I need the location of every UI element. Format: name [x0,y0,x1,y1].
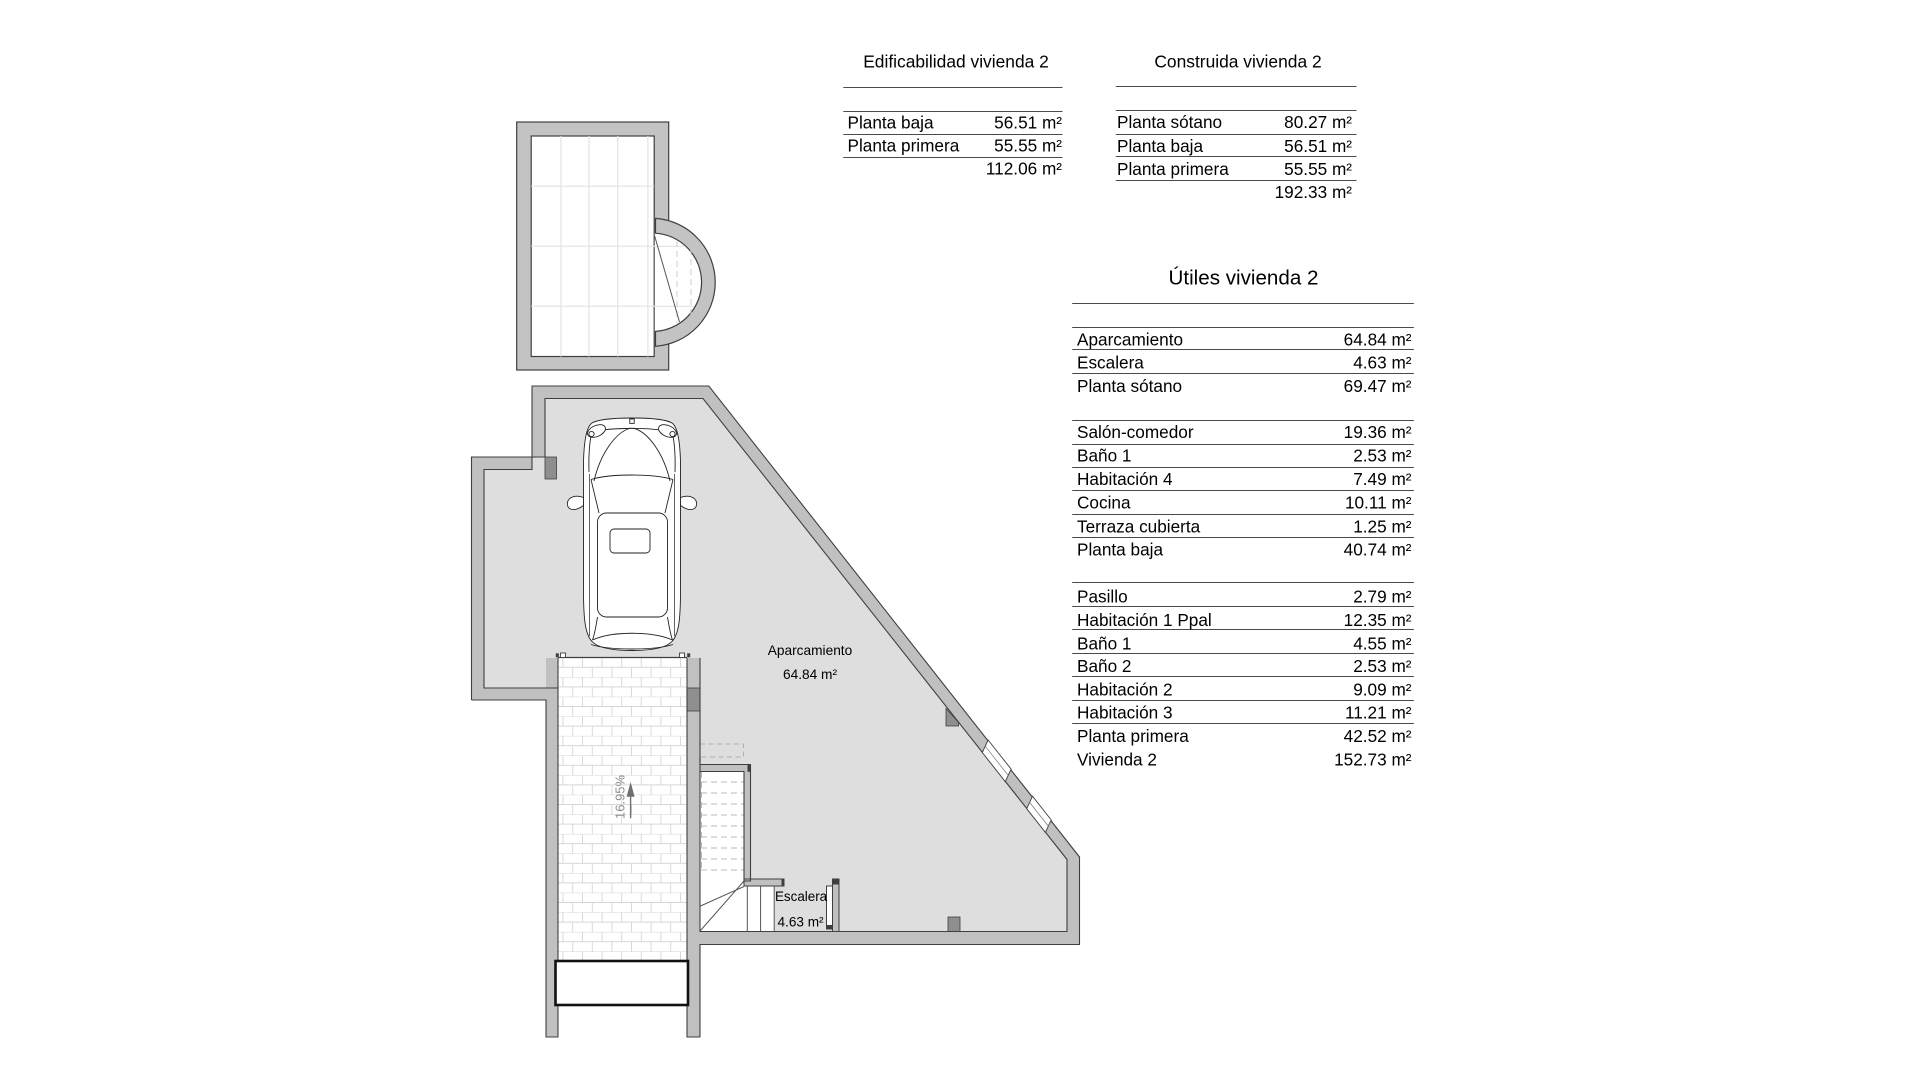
svg-text:Habitación 4: Habitación 4 [1077,469,1173,489]
svg-text:4.63 m²: 4.63 m² [778,915,825,930]
svg-text:Planta primera: Planta primera [1117,159,1229,179]
svg-text:80.27 m²: 80.27 m² [1284,112,1352,132]
svg-text:Aparcamiento: Aparcamiento [1077,330,1183,350]
svg-text:55.55 m²: 55.55 m² [1284,159,1352,179]
svg-text:7.49 m²: 7.49 m² [1353,469,1412,489]
svg-text:56.51 m²: 56.51 m² [994,113,1062,133]
svg-text:12.35 m²: 12.35 m² [1344,610,1412,630]
svg-text:Edificabilidad vivienda 2: Edificabilidad vivienda 2 [863,52,1049,72]
svg-text:152.73 m²: 152.73 m² [1334,749,1412,769]
svg-text:Útiles vivienda 2: Útiles vivienda 2 [1169,267,1319,290]
svg-text:16.95%: 16.95% [613,774,628,819]
svg-text:56.51 m²: 56.51 m² [1284,136,1352,156]
svg-text:Terraza cubierta: Terraza cubierta [1077,516,1201,536]
svg-text:Planta sótano: Planta sótano [1077,376,1182,396]
svg-text:Vivienda 2: Vivienda 2 [1077,749,1157,769]
svg-text:10.11 m²: 10.11 m² [1345,492,1412,512]
svg-text:Planta primera: Planta primera [1077,726,1189,746]
svg-text:2.79 m²: 2.79 m² [1353,586,1412,606]
svg-text:Baño 2: Baño 2 [1077,656,1131,676]
svg-text:Planta baja: Planta baja [848,113,934,133]
svg-text:42.52 m²: 42.52 m² [1344,726,1412,746]
svg-text:Salón-comedor: Salón-comedor [1077,422,1194,442]
svg-text:Pasillo: Pasillo [1077,586,1128,606]
svg-text:Escalera: Escalera [1077,353,1144,373]
svg-text:4.63 m²: 4.63 m² [1353,353,1412,373]
svg-text:Habitación 3: Habitación 3 [1077,702,1173,722]
svg-text:9.09 m²: 9.09 m² [1353,680,1412,700]
svg-text:11.21 m²: 11.21 m² [1345,702,1412,722]
svg-text:Habitación 1 Ppal: Habitación 1 Ppal [1077,610,1212,630]
svg-text:Baño 1: Baño 1 [1077,446,1131,466]
svg-text:19.36 m²: 19.36 m² [1344,422,1412,442]
svg-text:Construida vivienda 2: Construida vivienda 2 [1154,52,1321,72]
svg-text:Baño 1: Baño 1 [1077,633,1131,653]
svg-text:Habitación 2: Habitación 2 [1077,680,1173,700]
svg-text:Planta sótano: Planta sótano [1117,112,1222,132]
svg-text:192.33 m²: 192.33 m² [1275,182,1353,202]
svg-text:2.53 m²: 2.53 m² [1353,446,1412,466]
svg-text:69.47 m²: 69.47 m² [1344,376,1412,396]
svg-text:4.55 m²: 4.55 m² [1353,633,1412,653]
svg-text:Planta primera: Planta primera [848,135,960,155]
svg-text:40.74 m²: 40.74 m² [1344,539,1412,559]
svg-text:Escalera: Escalera [775,889,828,904]
svg-text:64.84 m²: 64.84 m² [783,667,837,682]
svg-text:55.55 m²: 55.55 m² [994,135,1062,155]
svg-text:112.06 m²: 112.06 m² [986,158,1062,178]
svg-text:Planta baja: Planta baja [1117,136,1203,156]
svg-text:2.53 m²: 2.53 m² [1353,656,1412,676]
svg-text:Aparcamiento: Aparcamiento [768,643,853,658]
svg-text:Cocina: Cocina [1077,492,1131,512]
svg-text:Planta baja: Planta baja [1077,539,1163,559]
svg-text:1.25 m²: 1.25 m² [1353,516,1412,536]
svg-text:64.84 m²: 64.84 m² [1344,330,1412,350]
